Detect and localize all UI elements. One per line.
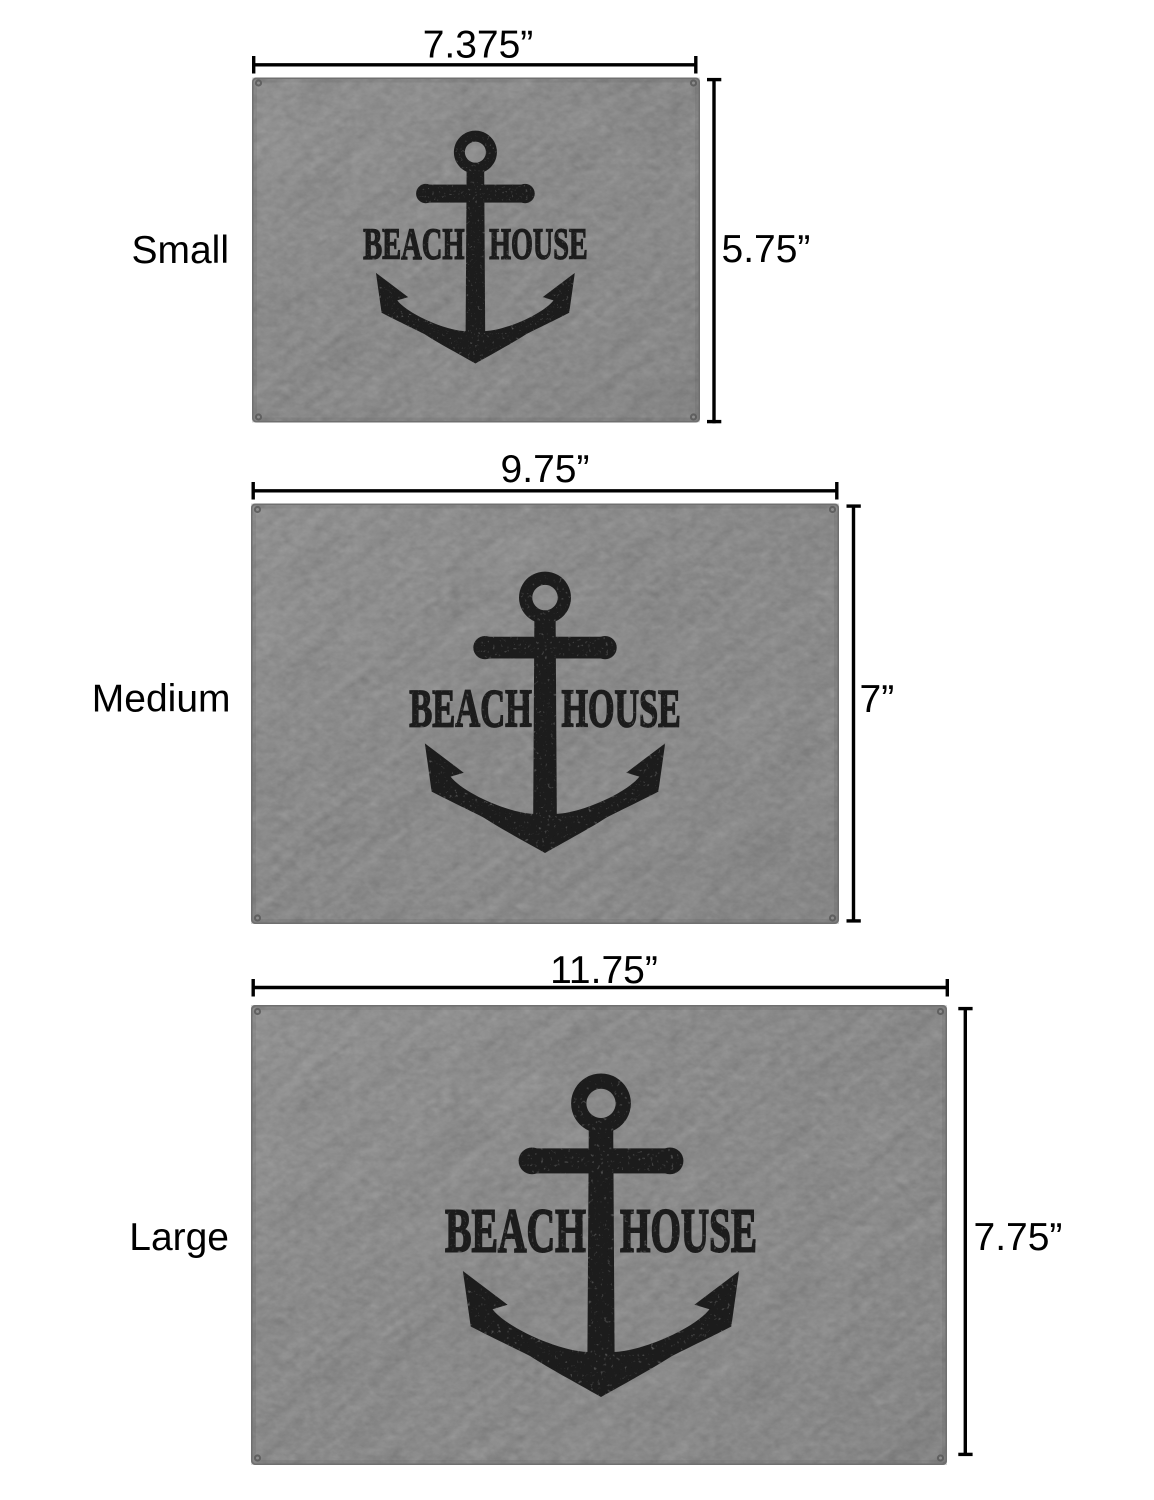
svg-text:5.75”: 5.75”: [722, 228, 811, 271]
svg-text:9.75”: 9.75”: [501, 448, 590, 491]
svg-text:7.375”: 7.375”: [423, 24, 534, 67]
svg-text:7”: 7”: [860, 678, 895, 721]
svg-text:7.75”: 7.75”: [974, 1216, 1063, 1259]
svg-text:Medium: Medium: [92, 678, 231, 721]
svg-text:Large: Large: [129, 1216, 229, 1259]
svg-text:Small: Small: [131, 229, 229, 272]
svg-text:11.75”: 11.75”: [550, 949, 658, 992]
